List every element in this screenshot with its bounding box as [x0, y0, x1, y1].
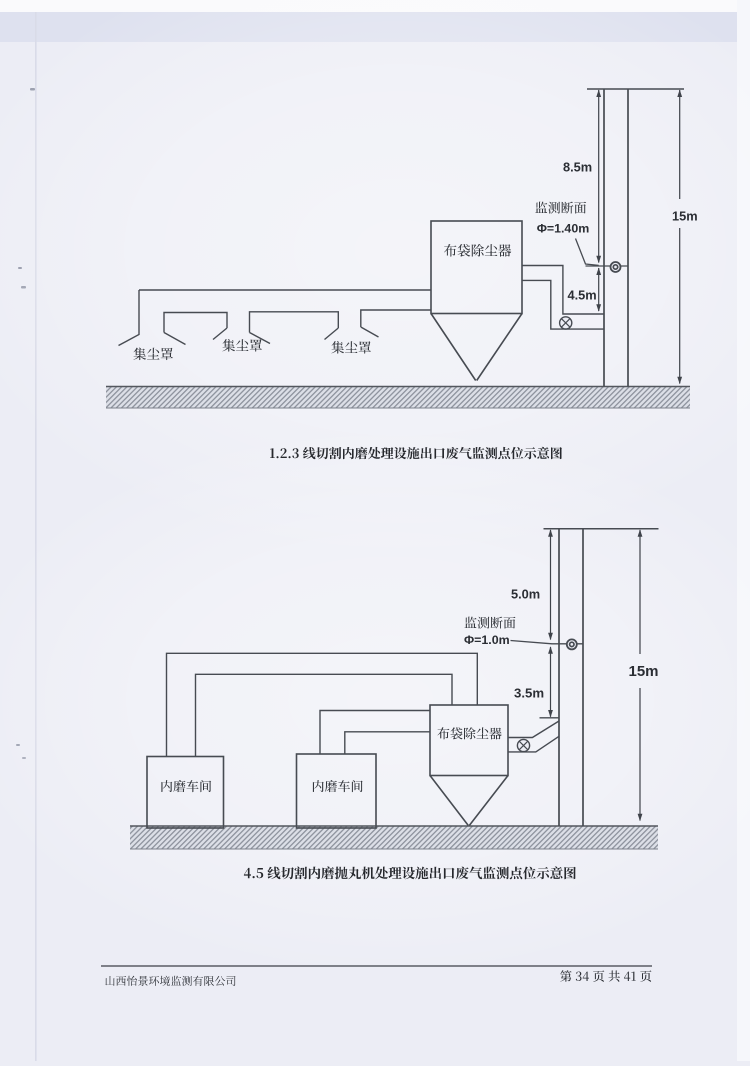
svg-text:3.5m: 3.5m — [514, 686, 544, 701]
svg-text:15m: 15m — [629, 663, 659, 680]
svg-text:8.5m: 8.5m — [563, 160, 592, 175]
svg-text:Φ=1.40m: Φ=1.40m — [537, 221, 590, 235]
svg-text:Φ=1.0m: Φ=1.0m — [464, 633, 510, 647]
svg-text:15m: 15m — [672, 209, 698, 224]
svg-text:4.5m: 4.5m — [568, 287, 597, 302]
svg-text:5.0m: 5.0m — [511, 587, 540, 602]
